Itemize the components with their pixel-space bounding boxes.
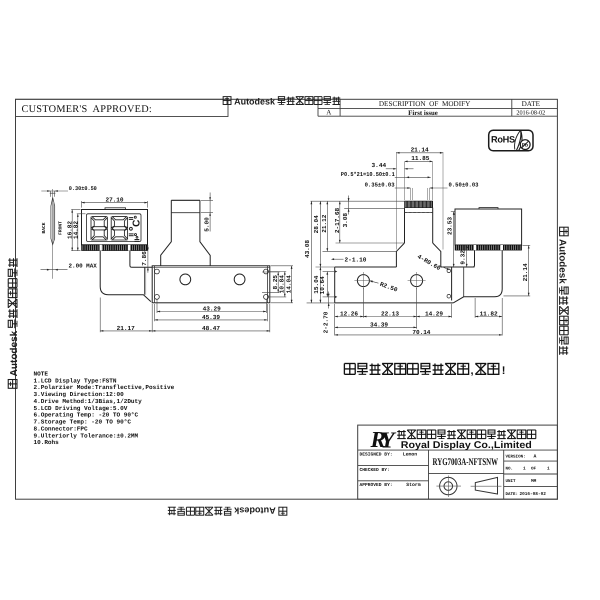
svg-text:Royal Display Co.,Limited: Royal Display Co.,Limited	[401, 440, 532, 451]
svg-text:APPROVED BY:: APPROVED BY:	[360, 482, 393, 488]
svg-text:11.82: 11.82	[480, 310, 498, 317]
svg-text:Autodesk: Autodesk	[233, 505, 275, 515]
svg-text:70.14: 70.14	[412, 329, 430, 336]
svg-text:14.04: 14.04	[285, 275, 292, 293]
svg-text:2-17.68: 2-17.68	[334, 207, 341, 233]
svg-text:10.Rohs: 10.Rohs	[34, 439, 60, 446]
svg-text:FRONT: FRONT	[58, 221, 64, 235]
svg-text:21.17: 21.17	[117, 325, 135, 332]
svg-text:First issue: First issue	[408, 110, 438, 117]
svg-text:0.35±0.03: 0.35±0.03	[365, 181, 395, 188]
svg-text:C: C	[132, 220, 143, 227]
svg-text:28.04: 28.04	[313, 215, 320, 233]
svg-text:VERSION:: VERSION:	[506, 455, 526, 460]
svg-text:21.12: 21.12	[321, 214, 328, 232]
svg-text:0.30±0.50: 0.30±0.50	[69, 185, 98, 192]
svg-text:Autodesk: Autodesk	[9, 330, 20, 376]
svg-text:5.00: 5.00	[203, 217, 210, 232]
svg-text:2.00 MAX: 2.00 MAX	[69, 262, 98, 269]
svg-text:CHECKED BY:: CHECKED BY:	[360, 467, 390, 473]
svg-text:22.13: 22.13	[381, 310, 399, 317]
svg-text:NO.: NO.	[506, 466, 514, 471]
svg-text:A: A	[326, 109, 331, 117]
svg-text:Autodesk: Autodesk	[557, 239, 568, 284]
svg-text:23.53: 23.53	[447, 217, 454, 235]
svg-text:Pb: Pb	[522, 143, 528, 149]
svg-text:P0.5*21=10.50±0.1: P0.5*21=10.50±0.1	[341, 171, 395, 178]
svg-text:48.47: 48.47	[202, 325, 220, 332]
svg-text:1: 1	[547, 466, 550, 471]
svg-text:DATE: DATE	[522, 100, 541, 108]
svg-text:2-2.70: 2-2.70	[323, 311, 330, 333]
svg-text:27.10: 27.10	[105, 197, 123, 204]
svg-text:2016-08-02: 2016-08-02	[520, 492, 547, 497]
svg-text:43.29: 43.29	[203, 306, 221, 313]
svg-text:Autodesk: Autodesk	[234, 96, 275, 106]
svg-text:BACK: BACK	[41, 222, 47, 233]
svg-text:DESCRIPTION OF MODIFY: DESCRIPTION OF MODIFY	[379, 100, 471, 108]
svg-text:RYG7003A-NFTSNW: RYG7003A-NFTSNW	[433, 457, 499, 468]
svg-text:!: !	[502, 365, 506, 377]
svg-text:OF: OF	[531, 466, 537, 471]
svg-text:43.08: 43.08	[304, 240, 311, 258]
svg-text:14.82: 14.82	[72, 221, 79, 239]
svg-text:34.39: 34.39	[370, 321, 388, 328]
svg-text:Storm: Storm	[406, 482, 421, 488]
svg-text:45.39: 45.39	[202, 314, 220, 321]
svg-text:RoHS: RoHS	[491, 135, 515, 145]
svg-text:21.14: 21.14	[411, 147, 429, 154]
svg-text:14.29: 14.29	[425, 310, 443, 317]
svg-text:3.44: 3.44	[372, 162, 387, 169]
svg-text:7.86: 7.86	[141, 251, 148, 266]
svg-text:3.08: 3.08	[342, 213, 349, 228]
svg-text:1: 1	[523, 466, 526, 471]
svg-text:21.14: 21.14	[522, 263, 529, 281]
svg-text:11.85: 11.85	[411, 155, 429, 162]
svg-text:CUSTOMER'S APPROVED:: CUSTOMER'S APPROVED:	[22, 104, 153, 115]
svg-text:10.64: 10.64	[319, 276, 326, 294]
svg-text:A: A	[534, 454, 537, 460]
svg-text:2016-08-02: 2016-08-02	[516, 110, 545, 117]
svg-text:2-1.10: 2-1.10	[345, 256, 367, 263]
svg-text:DATE:: DATE:	[506, 492, 519, 497]
svg-text:0.50±0.03: 0.50±0.03	[449, 181, 479, 188]
svg-text:12.26: 12.26	[340, 310, 358, 317]
svg-text:Y: Y	[381, 428, 397, 453]
svg-text:Lemon: Lemon	[403, 452, 418, 458]
svg-text:MM: MM	[531, 479, 537, 484]
svg-text:DESIGNED BY:: DESIGNED BY:	[360, 452, 393, 458]
svg-text:,: ,	[471, 365, 474, 377]
svg-text:9.32: 9.32	[459, 250, 466, 265]
svg-text:UNIT: UNIT	[506, 479, 517, 484]
